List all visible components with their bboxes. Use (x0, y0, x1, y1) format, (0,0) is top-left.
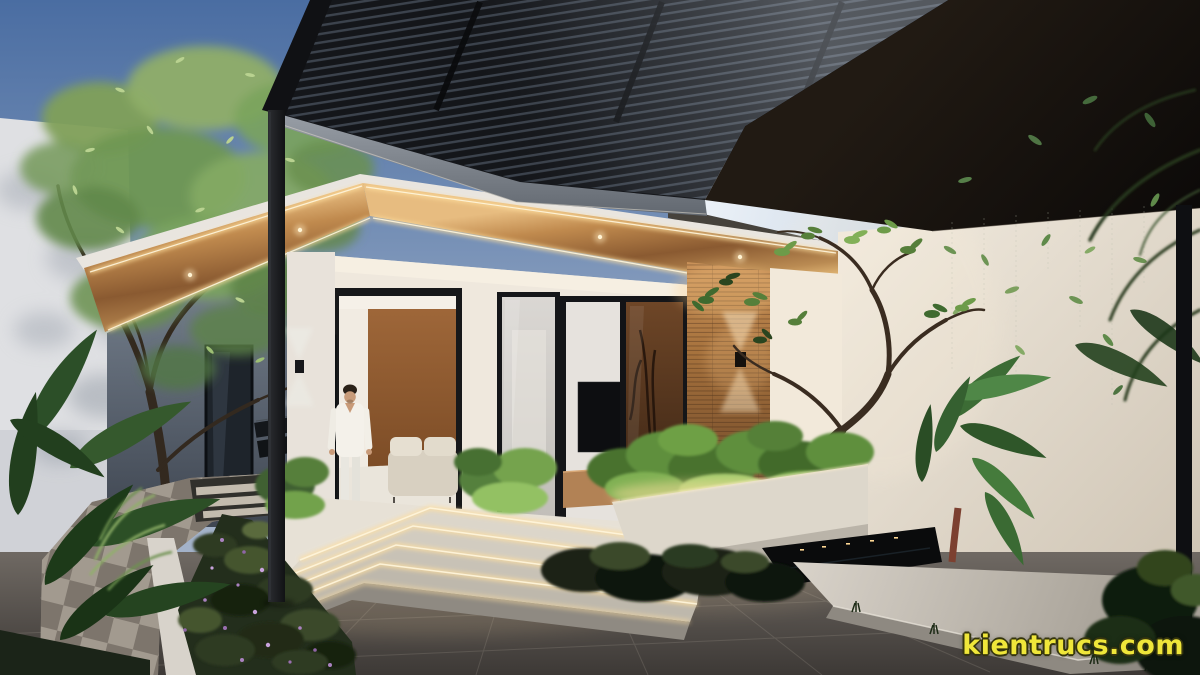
render-canvas (0, 0, 1200, 675)
architectural-render: kientrucs.com (0, 0, 1200, 675)
column-sconce (295, 360, 304, 373)
watermark-text: kientrucs.com (962, 630, 1184, 661)
tv (578, 382, 625, 452)
